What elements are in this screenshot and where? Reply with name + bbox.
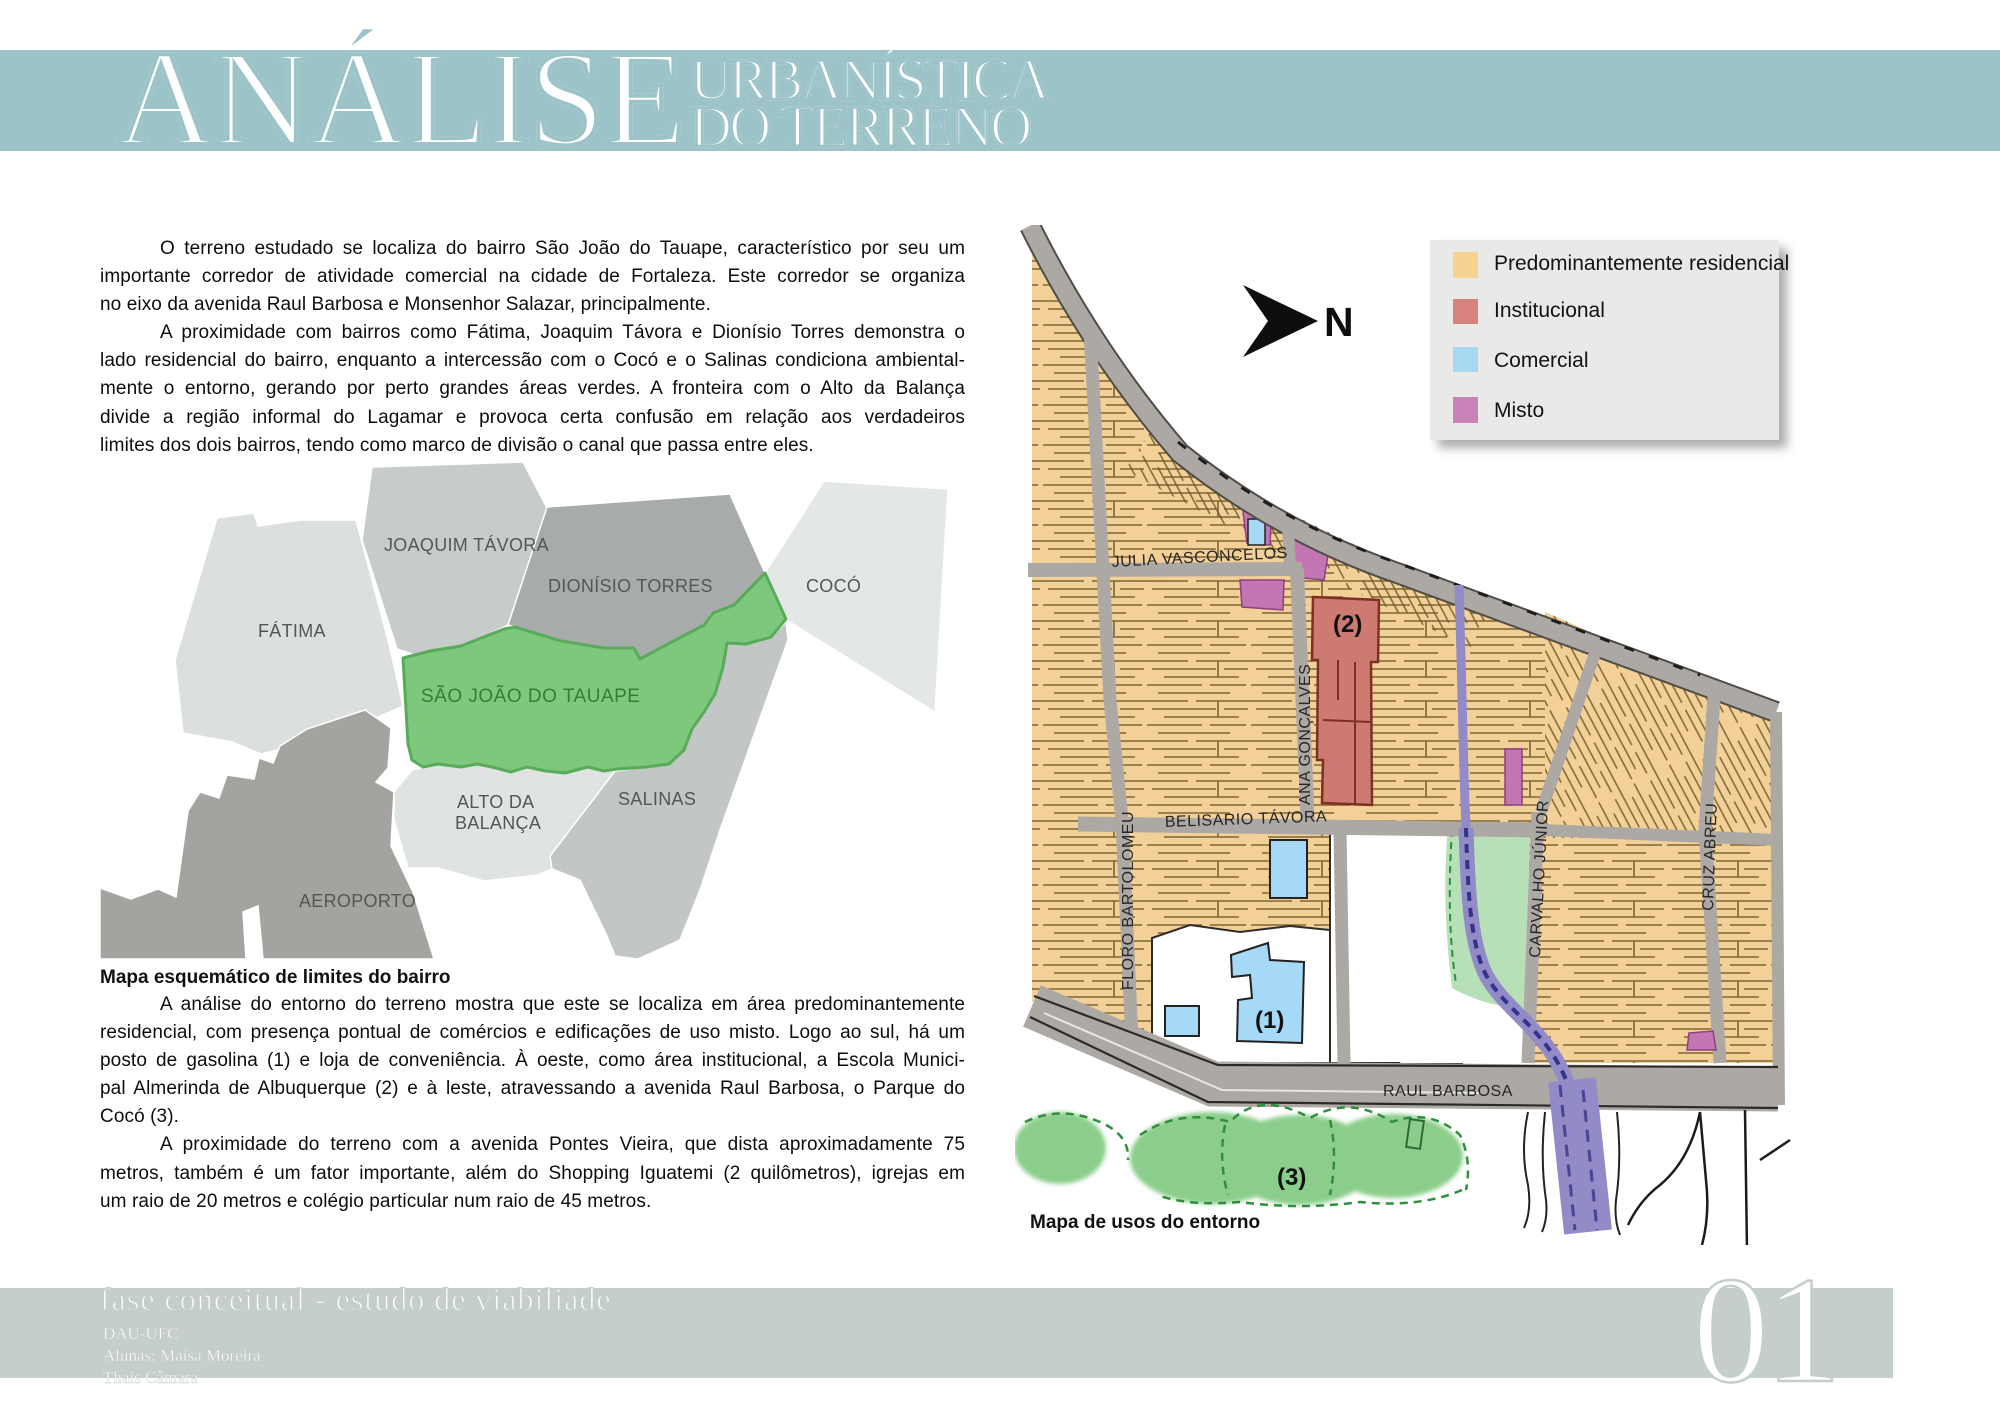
svg-text:DIONÍSIO TORRES: DIONÍSIO TORRES [548, 576, 713, 596]
svg-text:Institucional: Institucional [1494, 299, 1605, 322]
svg-text:Comercial: Comercial [1494, 349, 1589, 372]
svg-text:Misto: Misto [1494, 399, 1544, 422]
svg-text:BALANÇA: BALANÇA [455, 813, 541, 833]
svg-text:COCÓ: COCÓ [806, 575, 861, 596]
svg-text:N: N [1324, 299, 1354, 345]
svg-text:FLORO BARTOLOMEU: FLORO BARTOLOMEU [1120, 811, 1137, 990]
svg-text:SALINAS: SALINAS [618, 789, 696, 809]
svg-text:FÁTIMA: FÁTIMA [258, 621, 326, 641]
svg-text:(3): (3) [1277, 1164, 1306, 1191]
svg-text:(2): (2) [1333, 611, 1362, 638]
svg-text:SÃO JOÃO DO TAUAPE: SÃO JOÃO DO TAUAPE [421, 685, 640, 707]
svg-text:ANA GONÇALVES: ANA GONÇALVES [1297, 664, 1314, 805]
svg-text:ALTO DA: ALTO DA [457, 792, 534, 812]
svg-text:DO TERRENO: DO TERRENO [690, 94, 1030, 159]
svg-text:(1): (1) [1255, 1007, 1284, 1034]
svg-text:JOAQUIM TÁVORA: JOAQUIM TÁVORA [384, 535, 549, 555]
svg-text:RAUL BARBOSA: RAUL BARBOSA [1383, 1083, 1513, 1100]
svg-text:Predominantemente residencial: Predominantemente residencial [1494, 252, 1789, 275]
svg-text:AEROPORTO: AEROPORTO [299, 891, 416, 911]
